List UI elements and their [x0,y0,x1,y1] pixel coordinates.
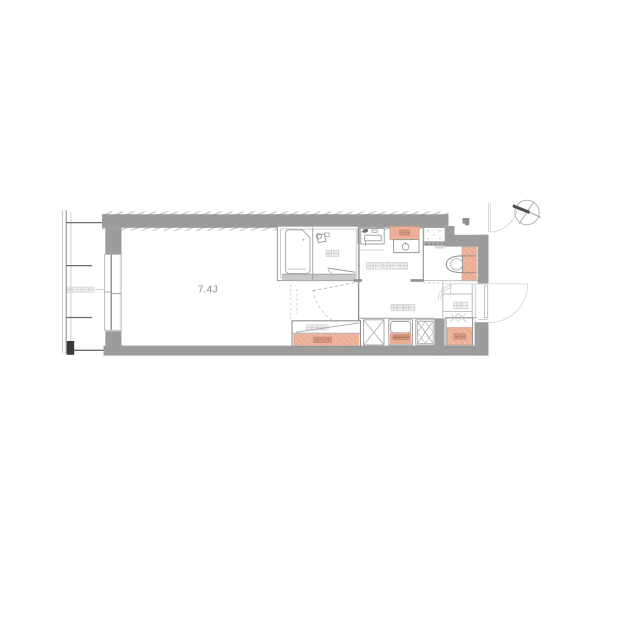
svg-text:7.4J: 7.4J [198,284,218,295]
